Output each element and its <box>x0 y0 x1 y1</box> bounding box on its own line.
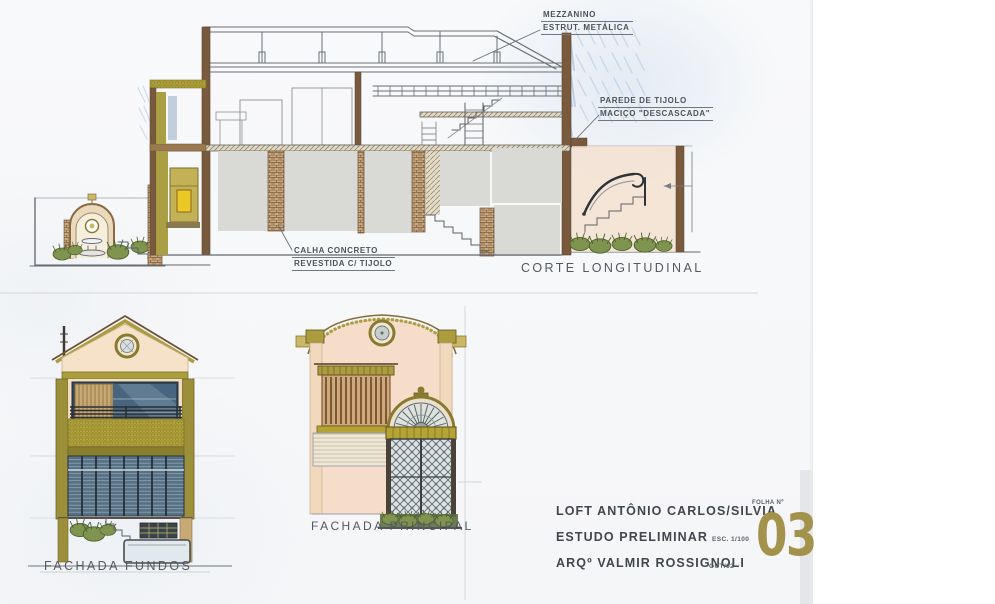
screenshot-root: MEZZANINO ESTRUT. METÁLICA PAREDE DE TIJ… <box>0 0 995 604</box>
back-facade-title: FACHADA FUNDOS <box>44 560 192 574</box>
annotation-brick-wall: PAREDE DE TIJOLO MACIÇO "DESCASCADA" <box>598 96 713 121</box>
annotation-gutter-line2: REVESTIDA C/ TIJOLO <box>292 259 395 271</box>
annotation-mezzanine: MEZZANINO ESTRUT. METÁLICA <box>541 10 633 35</box>
front-facade-drawing <box>296 315 466 528</box>
project-phase: ESTUDO PRELIMINAR <box>556 531 708 545</box>
front-facade-title: FACHADA PRINCIPAL <box>311 520 474 533</box>
patio-fountain <box>30 185 165 266</box>
drawing-date: OUT/02 <box>709 563 734 570</box>
section-drawing <box>30 26 700 266</box>
annotation-mezzanine-line1: MEZZANINO <box>541 10 633 22</box>
roof-structure <box>205 27 562 69</box>
drawing-sheet: MEZZANINO ESTRUT. METÁLICA PAREDE DE TIJ… <box>0 0 813 604</box>
annotation-brick-wall-line2: MACIÇO "DESCASCADA" <box>598 109 713 121</box>
section-title: CORTE LONGITUDINAL <box>521 262 704 276</box>
drawing-scale: ESC. 1/100 <box>712 536 749 543</box>
annotation-gutter: CALHA CONCRETO REVESTIDA C/ TIJOLO <box>292 246 395 271</box>
entry-stair-zone <box>570 146 692 253</box>
back-facade-drawing <box>28 316 235 572</box>
annotation-brick-wall-line1: PAREDE DE TIJOLO <box>598 96 713 108</box>
service-tower <box>150 80 206 255</box>
project-name: LOFT ANTÔNIO CARLOS/SILVIA <box>556 505 777 519</box>
annotation-gutter-line1: CALHA CONCRETO <box>292 246 395 258</box>
annotation-mezzanine-line2: ESTRUT. METÁLICA <box>541 23 633 35</box>
sheet-number: 03 <box>756 512 816 560</box>
basement-stair <box>426 215 489 251</box>
